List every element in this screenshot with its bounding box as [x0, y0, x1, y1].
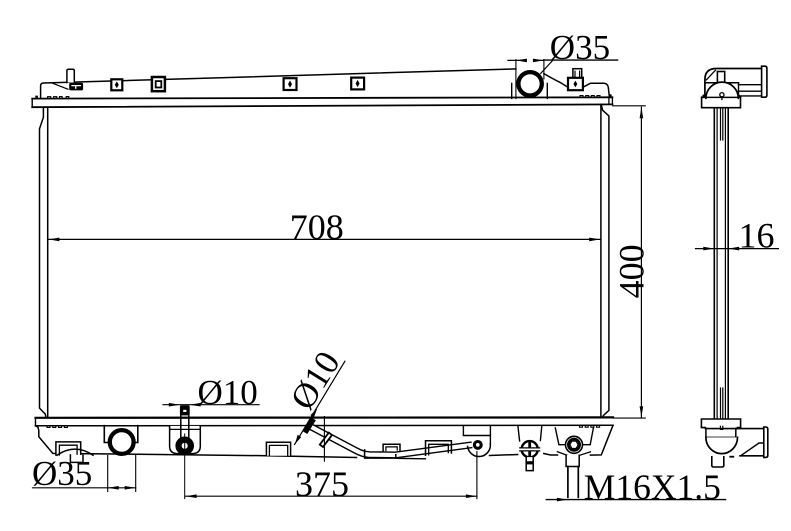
svg-text:708: 708: [290, 207, 344, 247]
svg-text:400: 400: [612, 244, 652, 298]
svg-text:Ø10: Ø10: [283, 344, 348, 416]
svg-text:16: 16: [739, 215, 775, 255]
svg-text:M16X1.5: M16X1.5: [584, 467, 721, 507]
svg-text:Ø35: Ø35: [32, 454, 92, 493]
svg-text:Ø10: Ø10: [198, 373, 258, 412]
svg-text:Ø35: Ø35: [550, 28, 610, 67]
svg-text:375: 375: [295, 464, 349, 504]
